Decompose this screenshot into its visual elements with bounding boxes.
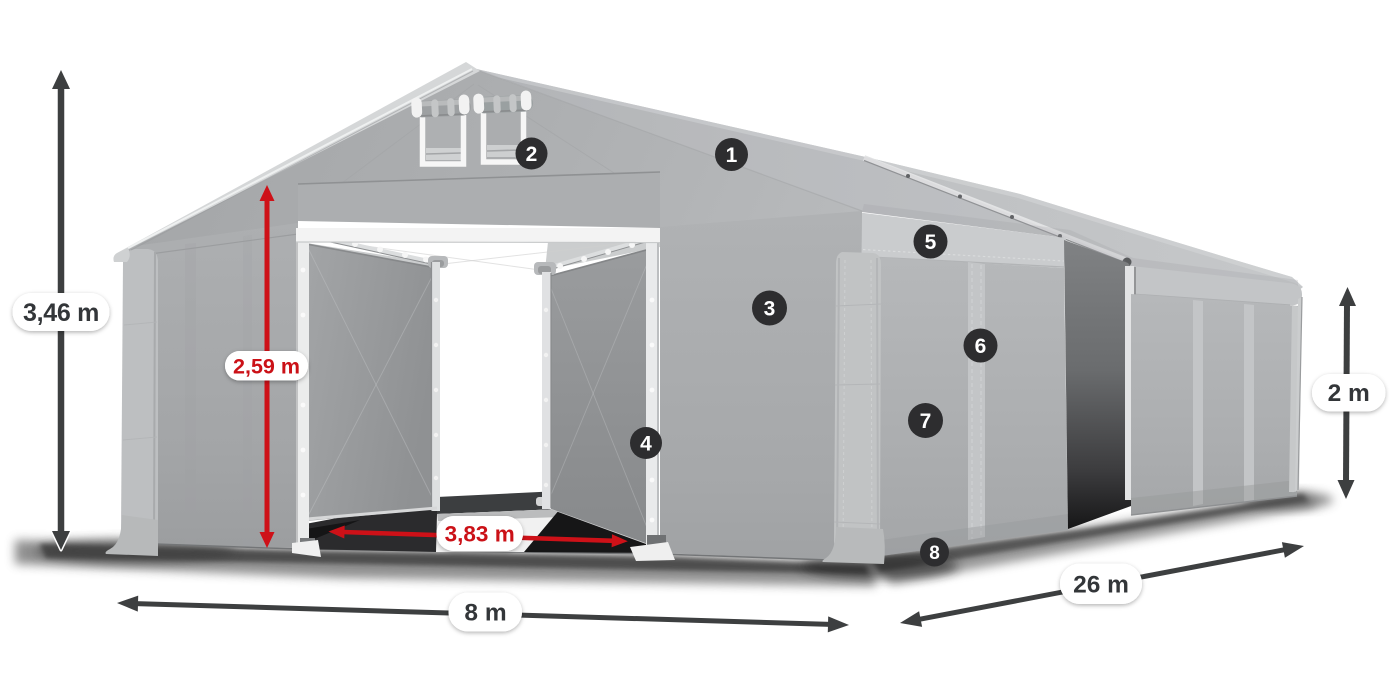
svg-text:3,46 m: 3,46 m bbox=[23, 299, 99, 327]
svg-text:1: 1 bbox=[726, 144, 738, 167]
svg-text:2 m: 2 m bbox=[1328, 380, 1370, 407]
svg-text:8 m: 8 m bbox=[464, 600, 506, 627]
svg-text:5: 5 bbox=[925, 231, 937, 254]
svg-text:2: 2 bbox=[526, 143, 538, 166]
svg-text:2,59 m: 2,59 m bbox=[233, 355, 300, 379]
svg-text:6: 6 bbox=[975, 335, 987, 358]
svg-text:3: 3 bbox=[764, 298, 776, 321]
svg-text:3,83 m: 3,83 m bbox=[445, 522, 515, 547]
svg-text:8: 8 bbox=[929, 543, 940, 564]
svg-text:7: 7 bbox=[920, 410, 932, 433]
svg-text:4: 4 bbox=[640, 433, 652, 456]
svg-text:26 m: 26 m bbox=[1073, 572, 1129, 599]
